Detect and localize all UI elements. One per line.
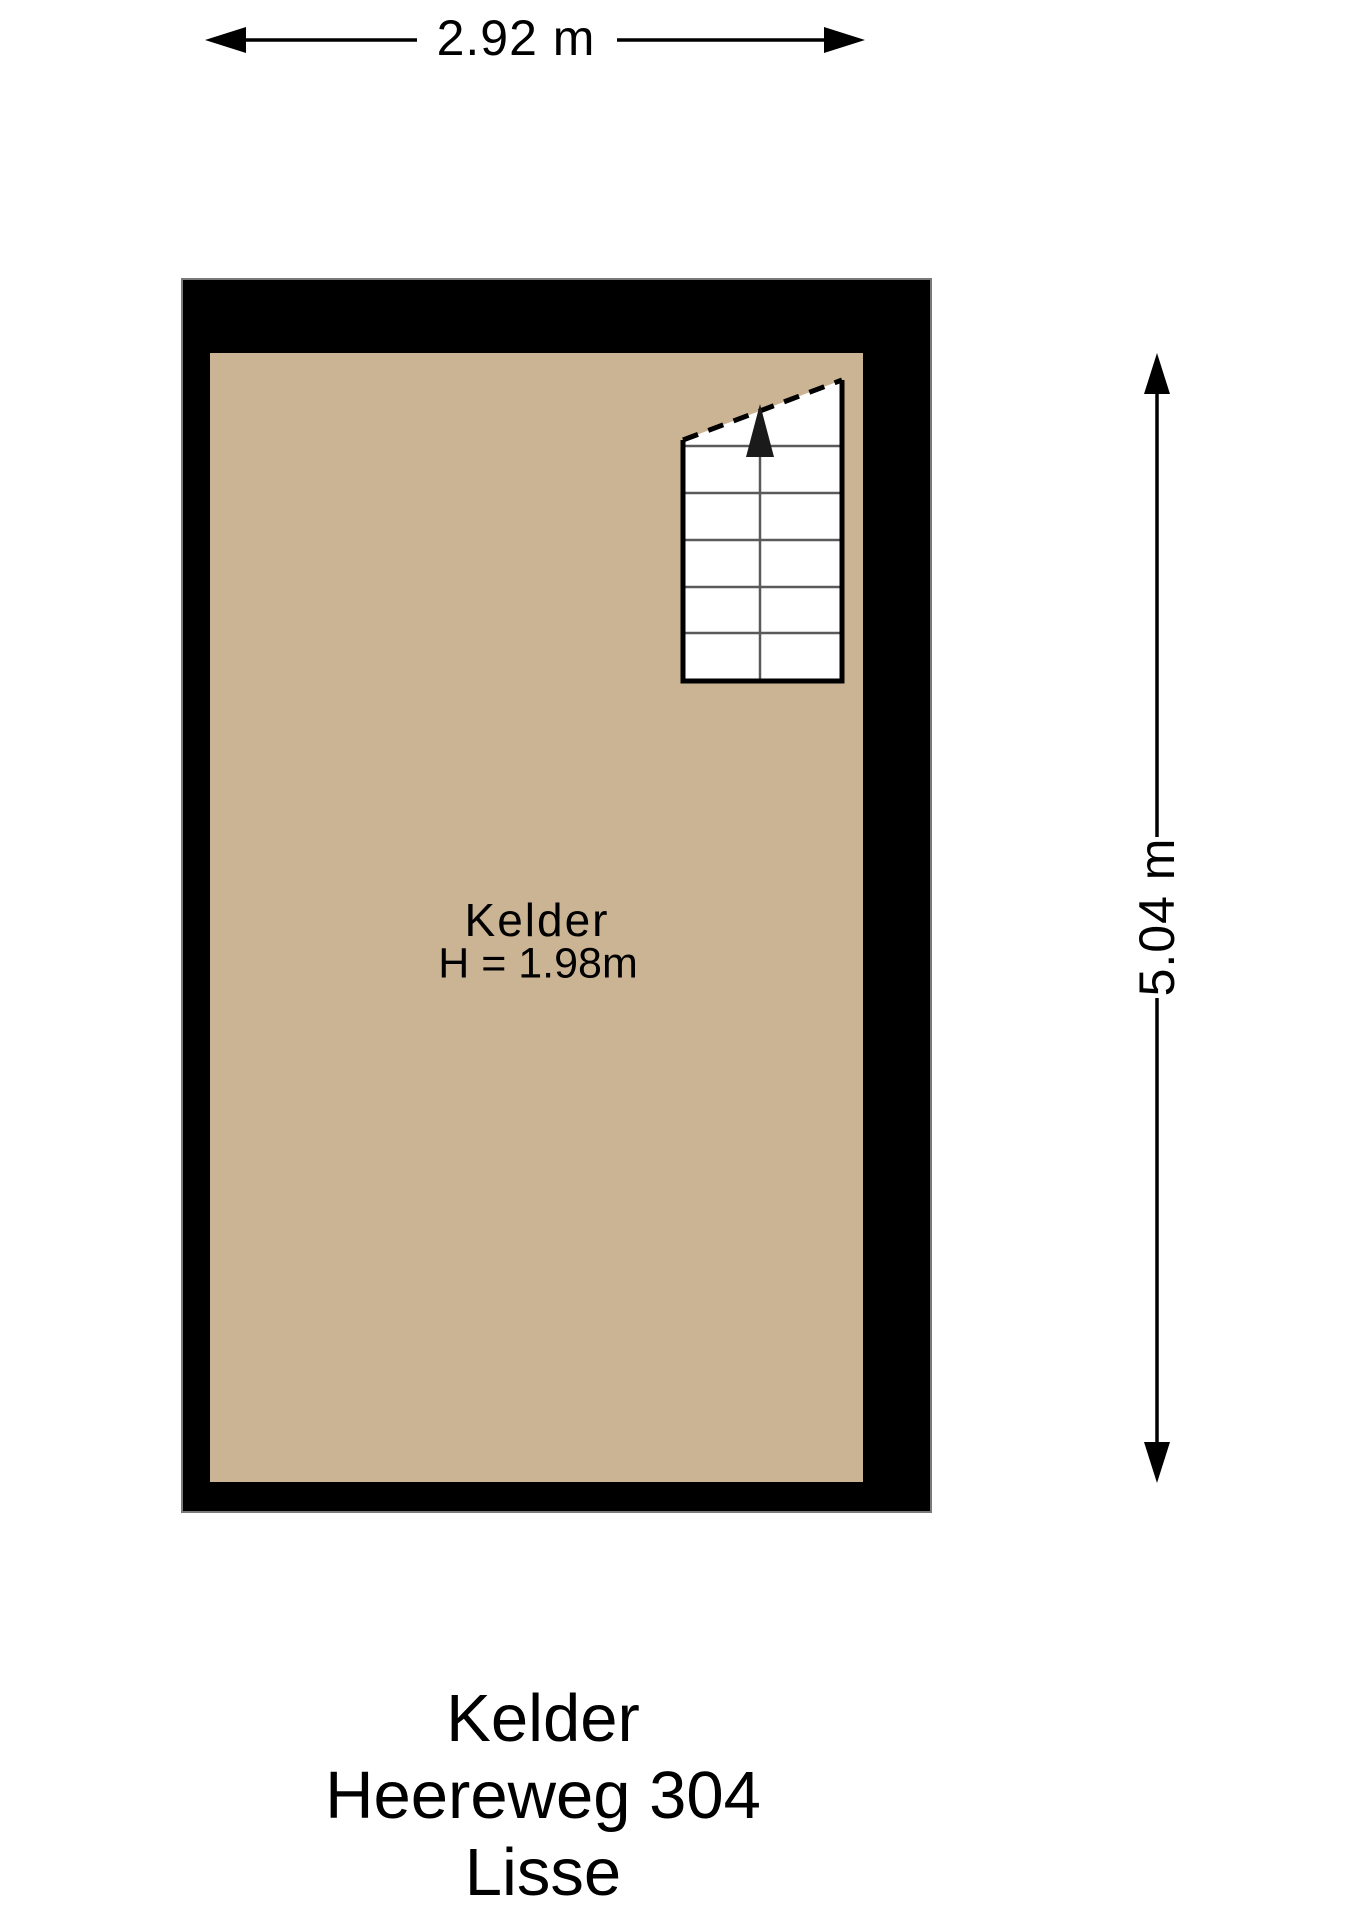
height-arrowhead-top-icon bbox=[1144, 353, 1170, 394]
title-room-line: Kelder bbox=[325, 1680, 761, 1757]
height-arrowhead-bottom-icon bbox=[1144, 1442, 1170, 1483]
floor-plan-page: 2.92 m 5.04 m Kelder H = 1.98m Kelder He… bbox=[0, 0, 1358, 1920]
title-block: Kelder Heereweg 304 Lisse bbox=[325, 1680, 761, 1911]
width-dimension-label: 2.92 m bbox=[437, 9, 596, 67]
width-arrowhead-left-icon bbox=[205, 27, 246, 53]
height-dimension-label: 5.04 m bbox=[1128, 838, 1186, 997]
room-ceiling-height-label: H = 1.98m bbox=[438, 940, 638, 989]
title-address-line: Heereweg 304 bbox=[325, 1757, 761, 1834]
width-arrowhead-right-icon bbox=[824, 27, 865, 53]
title-city-line: Lisse bbox=[325, 1834, 761, 1911]
